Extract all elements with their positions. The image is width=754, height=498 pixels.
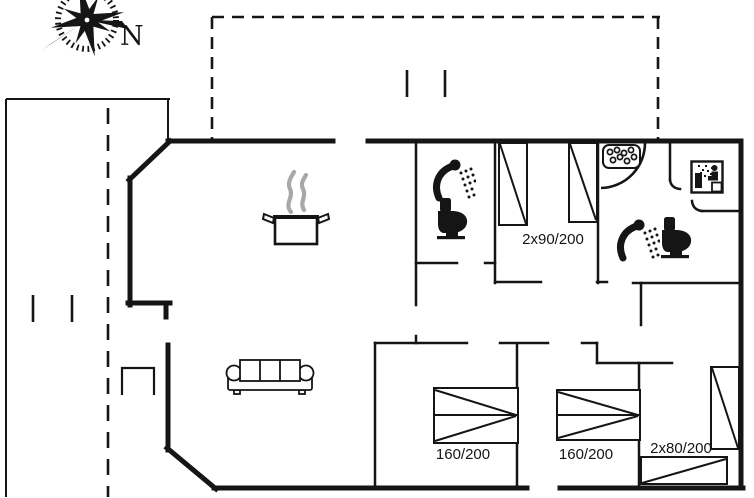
toilet-icon [656,217,694,259]
sauna-icon [690,160,724,194]
door-swing [692,201,702,211]
terrace-tick-marks [407,70,445,97]
door-swing [670,180,680,189]
chair-icon [119,365,157,397]
bed-symbols [434,143,739,484]
bed-label-bottom-left-room: 160/200 [436,446,490,463]
shower-icon [612,216,660,264]
whirlpool-icon [597,140,651,192]
bed-single-right-vertical [711,367,739,449]
bed-double-bottom-left [434,388,518,443]
bed-label-bottom-right-room: 2x80/200 [650,440,712,457]
shower-icon [428,156,476,204]
carport-outline [6,99,170,497]
bed-single-top-a [499,143,527,225]
terrace-dashed-outline [212,17,660,140]
carport-tick-marks [33,295,72,322]
toilet-icon [432,198,470,240]
floor-plan-canvas: N [0,0,754,498]
compass-north-label: N [120,21,144,52]
bed-single-top-b [569,143,597,222]
bed-label-bottom-middle-room: 160/200 [559,446,613,463]
bed-single-right-horizontal [641,457,727,484]
bed-double-bottom-middle [557,390,640,440]
sofa-icon [224,356,316,398]
bed-label-top-room: 2x90/200 [522,231,584,248]
steam-pot-icon [260,168,332,246]
